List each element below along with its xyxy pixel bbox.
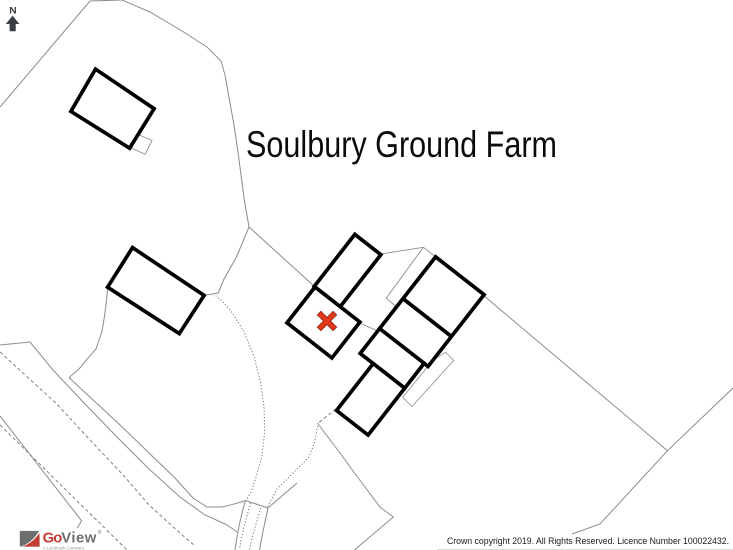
svg-text:A Landmark Company: A Landmark Company	[43, 545, 85, 550]
svg-text:®: ®	[98, 529, 102, 536]
svg-text:Crown copyright 2019. All Righ: Crown copyright 2019. All Rights Reserve…	[447, 536, 729, 546]
svg-text:Soulbury Ground Farm: Soulbury Ground Farm	[246, 124, 557, 165]
svg-text:Go: Go	[43, 531, 63, 547]
svg-text:N: N	[9, 5, 16, 15]
svg-text:View: View	[61, 531, 97, 547]
